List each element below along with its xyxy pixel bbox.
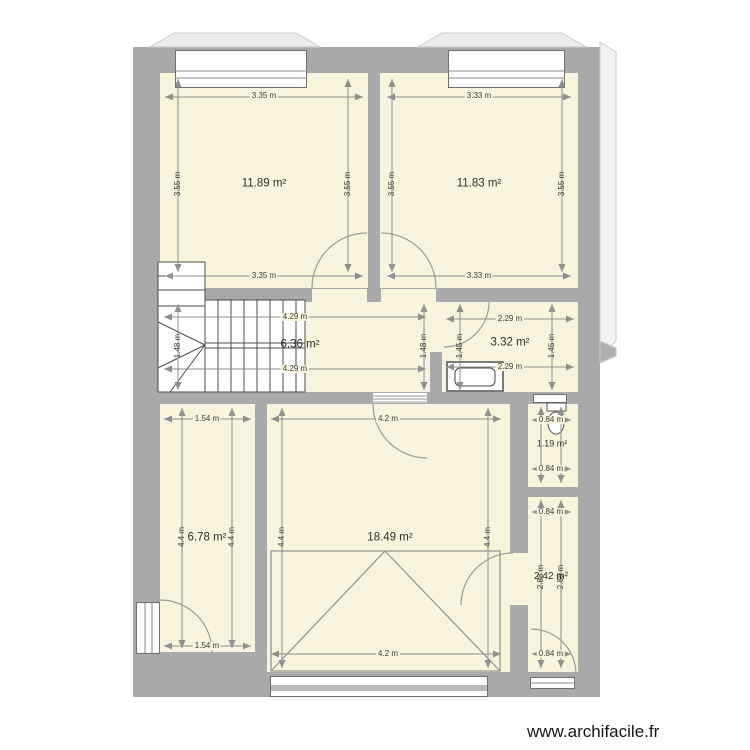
dim-top-left-width-top: 3.35 m [250, 92, 278, 100]
dim-top-right-width-top: 3.33 m [465, 92, 493, 100]
floor-plan: 3.35 m 3.35 m 3.55 m 3.55 m 3.33 m 3.33 … [0, 0, 750, 750]
dim-bathroom-height-left: 1.45 m [456, 334, 464, 358]
dim-top-left-width-bottom: 3.35 m [250, 272, 278, 280]
dim-top-left-height-left: 3.55 m [174, 172, 182, 196]
area-label-lower-right: 2.42 m² [534, 572, 568, 582]
dim-wc-width-top: 0.84 m [537, 416, 565, 424]
sink-fixture [447, 362, 503, 391]
dim-garage-width-top: 4.2 m [376, 415, 400, 423]
area-label-garage: 18.49 m² [367, 532, 412, 544]
dim-lower-left-height-right: 4.4 m [228, 527, 236, 547]
area-label-corridor: 6.36 m² [281, 339, 320, 351]
dim-bathroom-height-right: 1.45 m [548, 334, 556, 358]
dim-top-right-height-right: 3.55 m [558, 172, 566, 196]
dim-lower-left-width-bottom: 1.54 m [193, 642, 221, 650]
area-label-top-left: 11.89 m² [242, 178, 287, 190]
watermark: www.archifacile.fr [527, 722, 659, 742]
dim-wc-width-bottom: 0.84 m [537, 465, 565, 473]
plan-linework [0, 0, 750, 750]
dim-lower-right-width-top: 0.84 m [537, 508, 565, 516]
area-label-bathroom: 3.32 m² [491, 337, 530, 349]
dim-garage-height-left: 4.4 m [278, 527, 286, 547]
doorway-threshold [373, 393, 427, 403]
area-label-lower-left: 6.78 m² [188, 532, 227, 544]
dim-top-right-width-bottom: 3.33 m [465, 272, 493, 280]
dim-lower-left-height-left: 4.4 m [178, 527, 186, 547]
dim-top-left-height-right: 3.55 m [344, 172, 352, 196]
dim-bathroom-width-bottom: 2.29 m [496, 363, 524, 371]
dim-corridor-width-bottom: 4.29 m [281, 365, 309, 373]
dim-garage-width-bottom: 4.2 m [376, 650, 400, 658]
dim-bathroom-width-top: 2.29 m [496, 315, 524, 323]
area-label-top-right: 11.83 m² [457, 178, 502, 190]
dim-corridor-height-right: 1.48 m [420, 334, 428, 358]
door-arcs [160, 233, 576, 674]
dim-top-right-height-left: 3.55 m [388, 172, 396, 196]
dim-garage-height-right: 4.4 m [484, 527, 492, 547]
dim-lower-right-width-bottom: 0.84 m [537, 650, 565, 658]
dim-corridor-width-top: 4.29 m [281, 313, 309, 321]
dim-lower-left-width-top: 1.54 m [193, 415, 221, 423]
dim-corridor-height-left: 1.48 m [174, 334, 182, 358]
area-label-wc: 1.19 m² [537, 440, 568, 449]
